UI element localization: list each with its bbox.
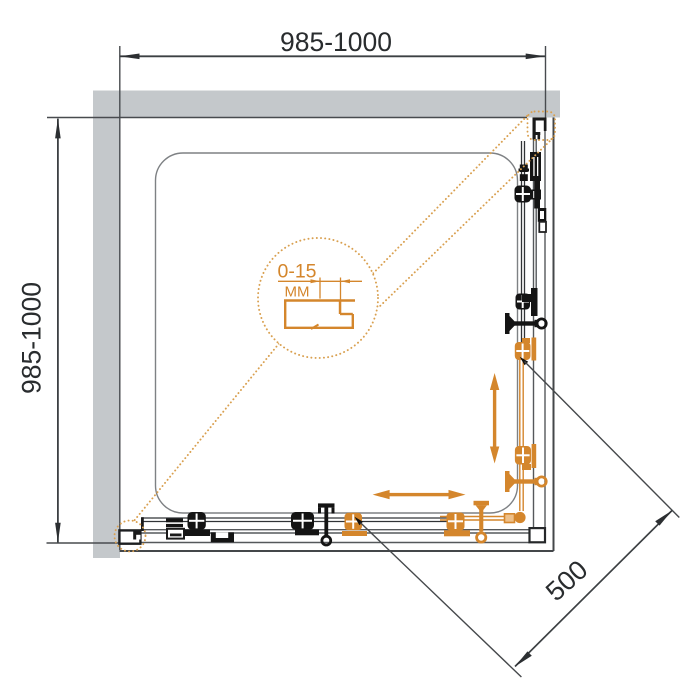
svg-text:985-1000: 985-1000 [280, 27, 392, 57]
svg-text:MM: MM [285, 284, 310, 301]
svg-text:985-1000: 985-1000 [17, 282, 47, 394]
svg-text:0-15: 0-15 [277, 261, 316, 283]
